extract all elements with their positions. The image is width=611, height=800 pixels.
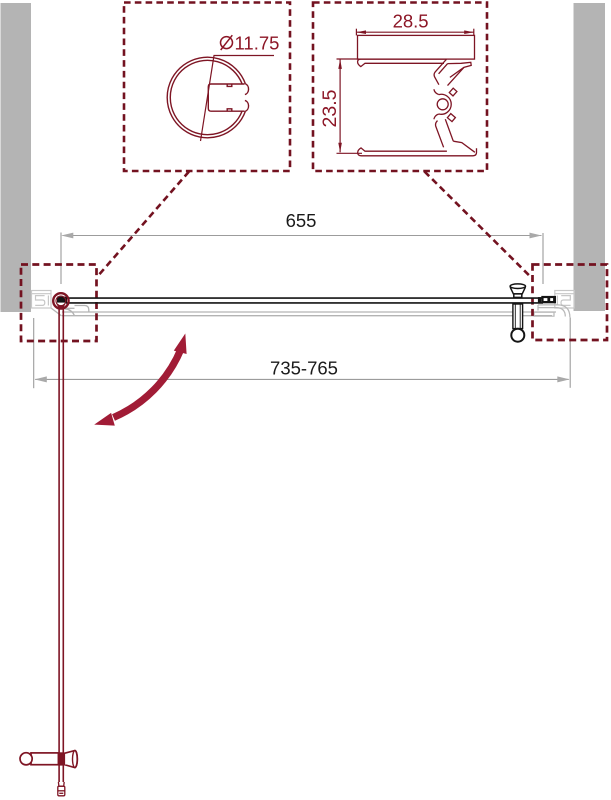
svg-text:11.75: 11.75 — [235, 32, 280, 53]
svg-text:28.5: 28.5 — [393, 11, 429, 32]
svg-text:23.5: 23.5 — [319, 89, 341, 127]
svg-text:655: 655 — [286, 210, 317, 231]
svg-text:735-765: 735-765 — [270, 358, 338, 379]
